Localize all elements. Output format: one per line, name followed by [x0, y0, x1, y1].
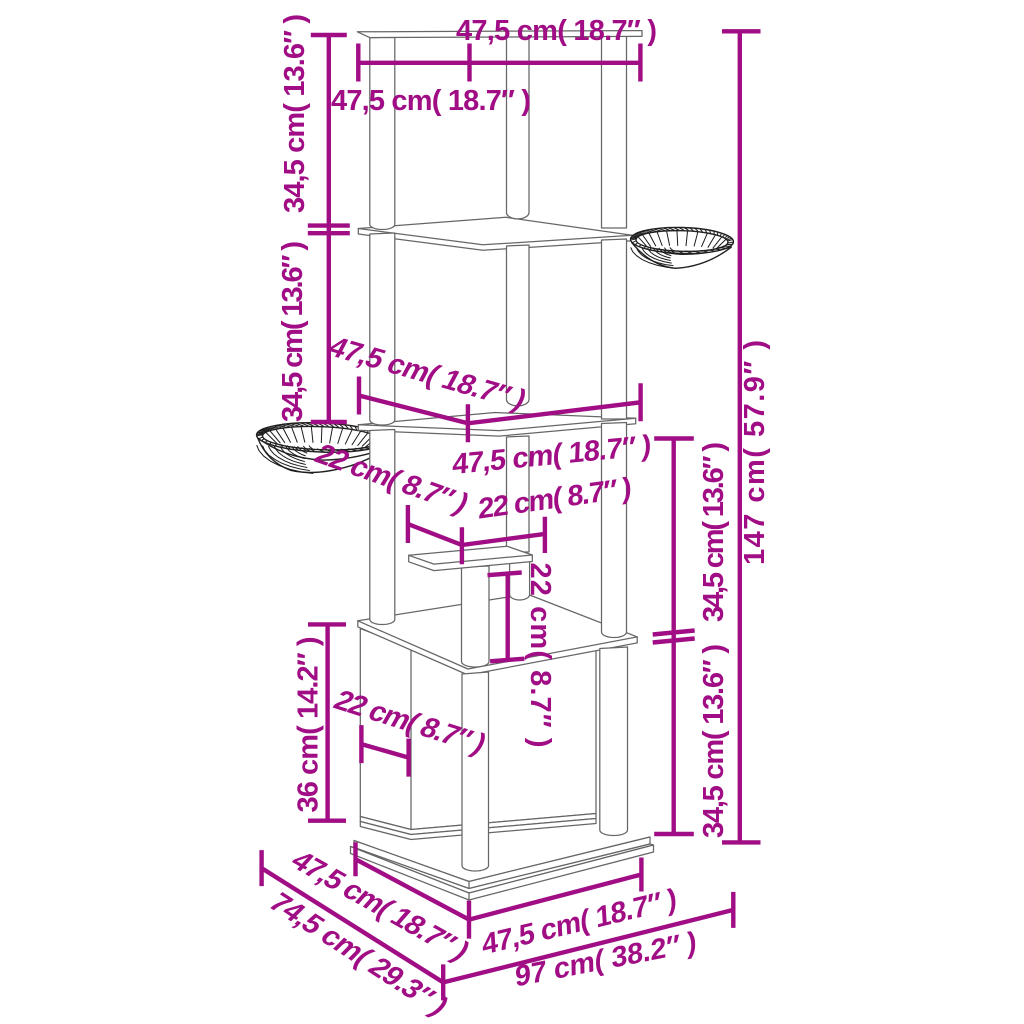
svg-text:34,5 cm( 13.6″ ): 34,5 cm( 13.6″ ) — [277, 241, 309, 422]
svg-text:22 cm( 8.7″ ): 22 cm( 8.7″ ) — [524, 563, 556, 748]
svg-text:34,5 cm( 13.6″ ): 34,5 cm( 13.6″ ) — [279, 14, 311, 213]
svg-text:47,5 cm( 18.7″ ): 47,5 cm( 18.7″ ) — [331, 85, 531, 117]
svg-text:47,5 cm( 18.7″ ): 47,5 cm( 18.7″ ) — [456, 15, 657, 47]
svg-text:34,5 cm( 13.6″ ): 34,5 cm( 13.6″ ) — [698, 442, 730, 622]
svg-text:36 cm( 14.2″ ): 36 cm( 14.2″ ) — [293, 637, 325, 813]
svg-text:34,5 cm( 13.6″ ): 34,5 cm( 13.6″ ) — [698, 644, 730, 838]
svg-text:147 cm( 57.9″ ): 147 cm( 57.9″ ) — [739, 340, 771, 565]
